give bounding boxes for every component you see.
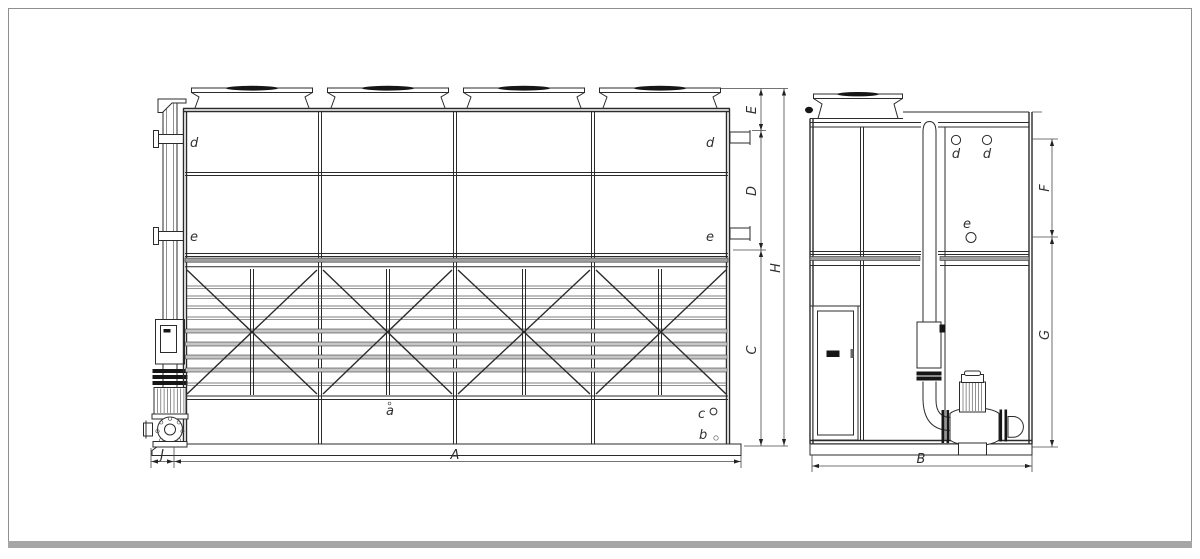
inlet-pipe-assembly — [153, 100, 188, 390]
label-a: a — [386, 404, 394, 419]
outlet-flange-bar — [1000, 410, 1003, 442]
label-b-marker — [714, 436, 718, 440]
label-c: c — [698, 407, 705, 422]
coupling-ring — [153, 369, 188, 373]
valve-box — [917, 322, 941, 368]
dim-label-D: D — [745, 186, 760, 196]
technical-drawing-svg: d e d e a c b E D C H A J — [0, 0, 1200, 559]
side-mid-rail-top — [810, 252, 1029, 255]
pump-base — [153, 442, 187, 448]
label-b: b — [699, 428, 707, 443]
outlet-flange-bar — [1005, 410, 1008, 442]
label-d-left: d — [190, 136, 199, 151]
cowl-body — [192, 93, 313, 109]
coupling-ring — [153, 375, 188, 379]
skid-base — [152, 444, 741, 456]
stub-pipe — [159, 232, 184, 241]
motor-fins — [963, 383, 982, 411]
casing — [183, 109, 730, 445]
louver-bar — [186, 368, 728, 372]
control-box — [156, 320, 185, 365]
side-casing-top — [810, 112, 1029, 127]
side-view: d d e — [805, 92, 1032, 455]
front-pump — [144, 388, 189, 448]
front-view: d e d e a c b — [144, 86, 751, 456]
dim-label-H: H — [769, 263, 784, 273]
extension-lines — [151, 89, 788, 469]
label-e: e — [963, 217, 971, 232]
louver-bar — [186, 329, 728, 333]
fan-cowl-4 — [600, 86, 721, 108]
inlet-flange-bar — [942, 410, 945, 443]
coupling-ring — [917, 372, 942, 376]
door-frame — [813, 306, 858, 440]
side-riser-pipe — [917, 122, 952, 431]
riser-pipe-inner-lines — [167, 100, 174, 319]
side-pump — [942, 371, 1024, 455]
label-e-right: e — [706, 230, 714, 245]
control-box-body — [156, 320, 185, 365]
door-hinge — [851, 349, 854, 358]
fan-blade — [226, 86, 278, 91]
label-d-rear: d — [983, 147, 992, 162]
door-label-plate — [827, 351, 840, 358]
dim-label-C: C — [745, 345, 760, 355]
side-fan-cowl — [805, 92, 903, 119]
drawing-canvas: d e d e a c b E D C H A J — [0, 0, 1200, 559]
dim-label-B: B — [917, 452, 926, 467]
dim-label-E: E — [745, 105, 760, 114]
motor-fin-housing — [154, 388, 186, 415]
front-dimensions: E D C H A J — [151, 89, 788, 469]
nozzle-d — [730, 132, 750, 143]
cowl-body — [464, 93, 585, 109]
dim-label-F: F — [1038, 184, 1053, 192]
motor-top — [965, 371, 981, 376]
dim-label-G: G — [1038, 330, 1053, 340]
fan-cowl-1 — [192, 86, 313, 108]
cowl-body — [814, 99, 903, 119]
inlet-flange-bar — [947, 410, 950, 443]
pipe-stub-lower — [154, 228, 184, 245]
bay-dividers — [319, 111, 595, 444]
port-d-front — [951, 135, 960, 144]
label-c-marker — [710, 408, 717, 415]
stub-flange — [154, 131, 159, 148]
pump-suction-stub — [144, 423, 153, 436]
control-box-display — [164, 329, 171, 333]
side-rail-band-right — [940, 257, 1029, 261]
fan-blade — [362, 86, 414, 91]
cowl-body — [600, 93, 721, 109]
corner-bracket — [158, 99, 186, 113]
fan-cowls — [192, 86, 721, 108]
fan-cowl-2 — [328, 86, 449, 108]
mount-bolt — [805, 107, 813, 113]
eliminator-rail-band — [185, 258, 728, 262]
louver-bar — [186, 355, 728, 359]
port-e — [966, 233, 976, 243]
right-nozzles — [730, 130, 750, 241]
cowl-body — [328, 93, 449, 109]
stub-pipe — [159, 135, 184, 144]
label-d-right: d — [706, 136, 715, 151]
stub-flange — [154, 228, 159, 245]
nozzle-e — [730, 228, 750, 239]
coupling-ring — [153, 381, 188, 385]
access-door — [813, 306, 858, 440]
port-d-rear — [982, 135, 991, 144]
riser-pipe — [923, 122, 936, 323]
dim-label-A: A — [450, 448, 460, 463]
dimension-arrows — [152, 89, 787, 464]
label-e-left: e — [190, 230, 198, 245]
front-part-labels: d e d e a c b — [190, 136, 718, 443]
fan-blade — [498, 86, 550, 91]
pump-volute — [950, 408, 999, 446]
pipe-stub-upper — [154, 131, 184, 148]
side-rail-band-left — [810, 257, 920, 261]
coupling-ring — [917, 377, 942, 381]
pipe-coupling — [153, 369, 188, 385]
pump-pedestal — [959, 443, 987, 455]
outlet-end-cap — [1008, 416, 1023, 437]
fan-blade — [634, 86, 686, 91]
valve-sensor — [940, 325, 946, 333]
bottom-edge-bar — [8, 541, 1192, 548]
fan-blade — [837, 92, 879, 96]
side-part-labels: d d e — [951, 135, 991, 242]
fan-cowl-3 — [464, 86, 585, 108]
label-d-front: d — [952, 147, 961, 162]
